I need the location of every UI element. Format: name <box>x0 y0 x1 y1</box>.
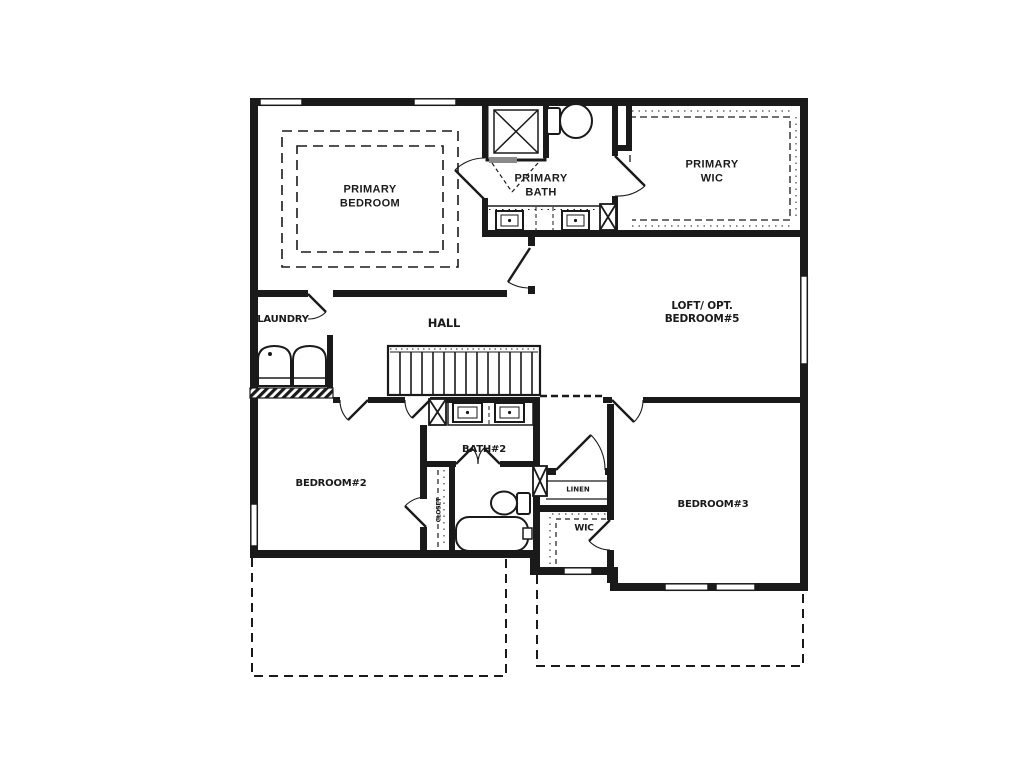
washer-dryer-icon <box>256 346 328 386</box>
double-vanity-sinks-icon <box>487 206 614 233</box>
floorplan-drawing <box>0 0 1024 768</box>
window-symbols <box>251 99 808 591</box>
floorplan-page: PRIMARY BEDROOM PRIMARY BATH PRIMARY WIC… <box>0 0 1024 768</box>
hatched-wall <box>250 388 333 398</box>
closet-shelf-dashes <box>630 111 796 226</box>
bath2-toilet-icon <box>491 492 530 515</box>
bath2-chase-box-icon <box>429 399 547 496</box>
exterior-walls <box>250 98 808 591</box>
shower-icon <box>487 103 545 192</box>
tray-ceiling-dashed-outline <box>282 131 458 267</box>
chase-box-icon <box>600 204 616 230</box>
toilet-icon <box>547 104 592 138</box>
bathtub-icon <box>456 517 532 551</box>
wic-shelf-dashes <box>550 514 606 564</box>
bedroom2-closet-shelf-dashes <box>438 470 444 548</box>
stairs-icon <box>388 346 540 395</box>
lower-level-dashed-outline <box>252 558 803 676</box>
linen-shelves <box>546 481 607 499</box>
